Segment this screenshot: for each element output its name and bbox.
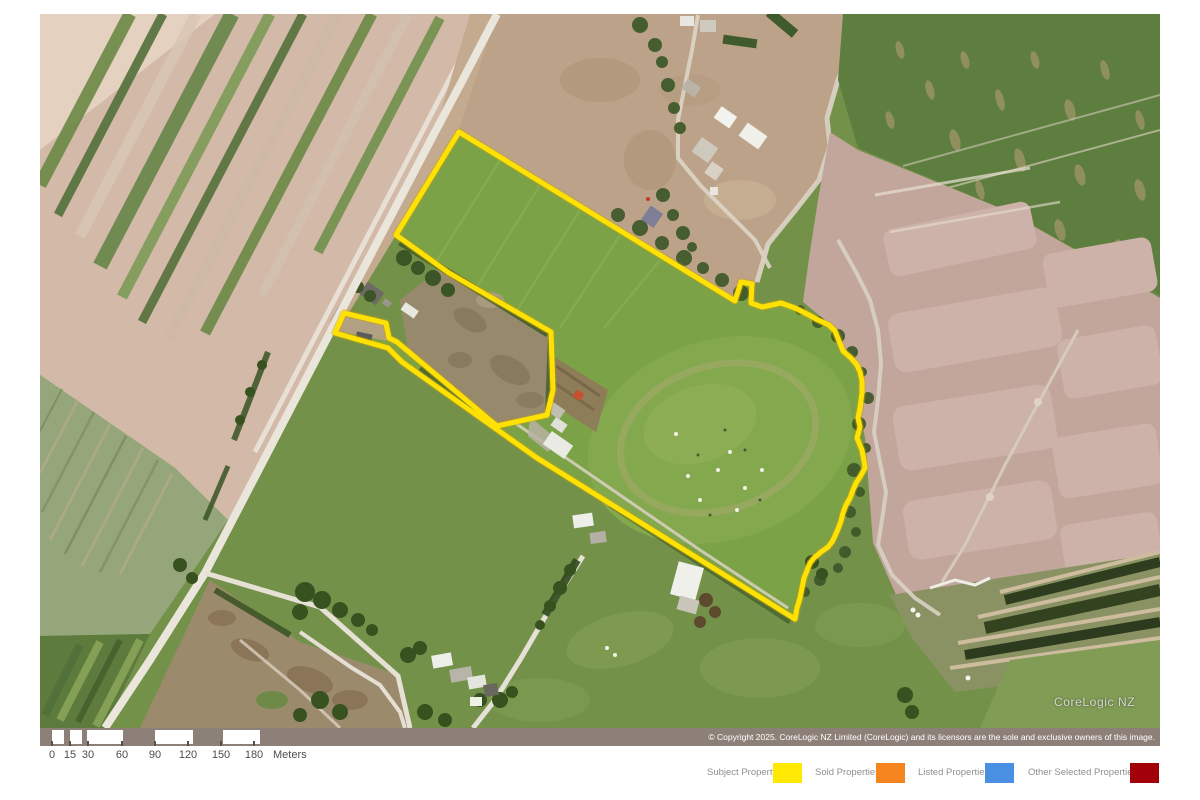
scale-tick — [69, 741, 71, 746]
scale-tick — [87, 741, 89, 746]
scale-label: 60 — [116, 749, 128, 761]
scale-label: 15 — [64, 749, 76, 761]
legend-label-sold: Sold Properties — [815, 763, 880, 783]
legend-swatch-listed — [985, 763, 1014, 783]
aerial-map[interactable] — [40, 14, 1160, 728]
scale-tick — [154, 741, 156, 746]
scale-label: 30 — [82, 749, 94, 761]
scale-label: 0 — [49, 749, 55, 761]
scale-tick — [51, 741, 53, 746]
scale-bar-strip: © Copyright 2025. CoreLogic NZ Limited (… — [40, 728, 1160, 746]
legend-label-subject: Subject Property — [707, 763, 777, 783]
watermark-text: CoreLogic NZ — [1054, 695, 1135, 709]
copyright-text: © Copyright 2025. CoreLogic NZ Limited (… — [708, 728, 1155, 746]
legend-swatch-other — [1130, 763, 1159, 783]
scale-tick — [187, 741, 189, 746]
scale-label: 180 — [245, 749, 263, 761]
scale-block — [87, 730, 123, 744]
scale-tick — [253, 741, 255, 746]
property-map-report: CoreLogic NZ © Copyright 2025. CoreLogic… — [0, 0, 1200, 800]
scale-label: 150 — [212, 749, 230, 761]
scale-block — [70, 730, 82, 744]
scale-block — [52, 730, 64, 744]
legend-swatch-sold — [876, 763, 905, 783]
legend-label-listed: Listed Properties — [918, 763, 989, 783]
legend-swatch-subject — [773, 763, 802, 783]
scale-unit-label: Meters — [273, 749, 307, 761]
legend-label-other: Other Selected Properties — [1028, 763, 1137, 783]
scale-label: 120 — [179, 749, 197, 761]
scale-label: 90 — [149, 749, 161, 761]
scale-tick — [220, 741, 222, 746]
scale-tick — [121, 741, 123, 746]
